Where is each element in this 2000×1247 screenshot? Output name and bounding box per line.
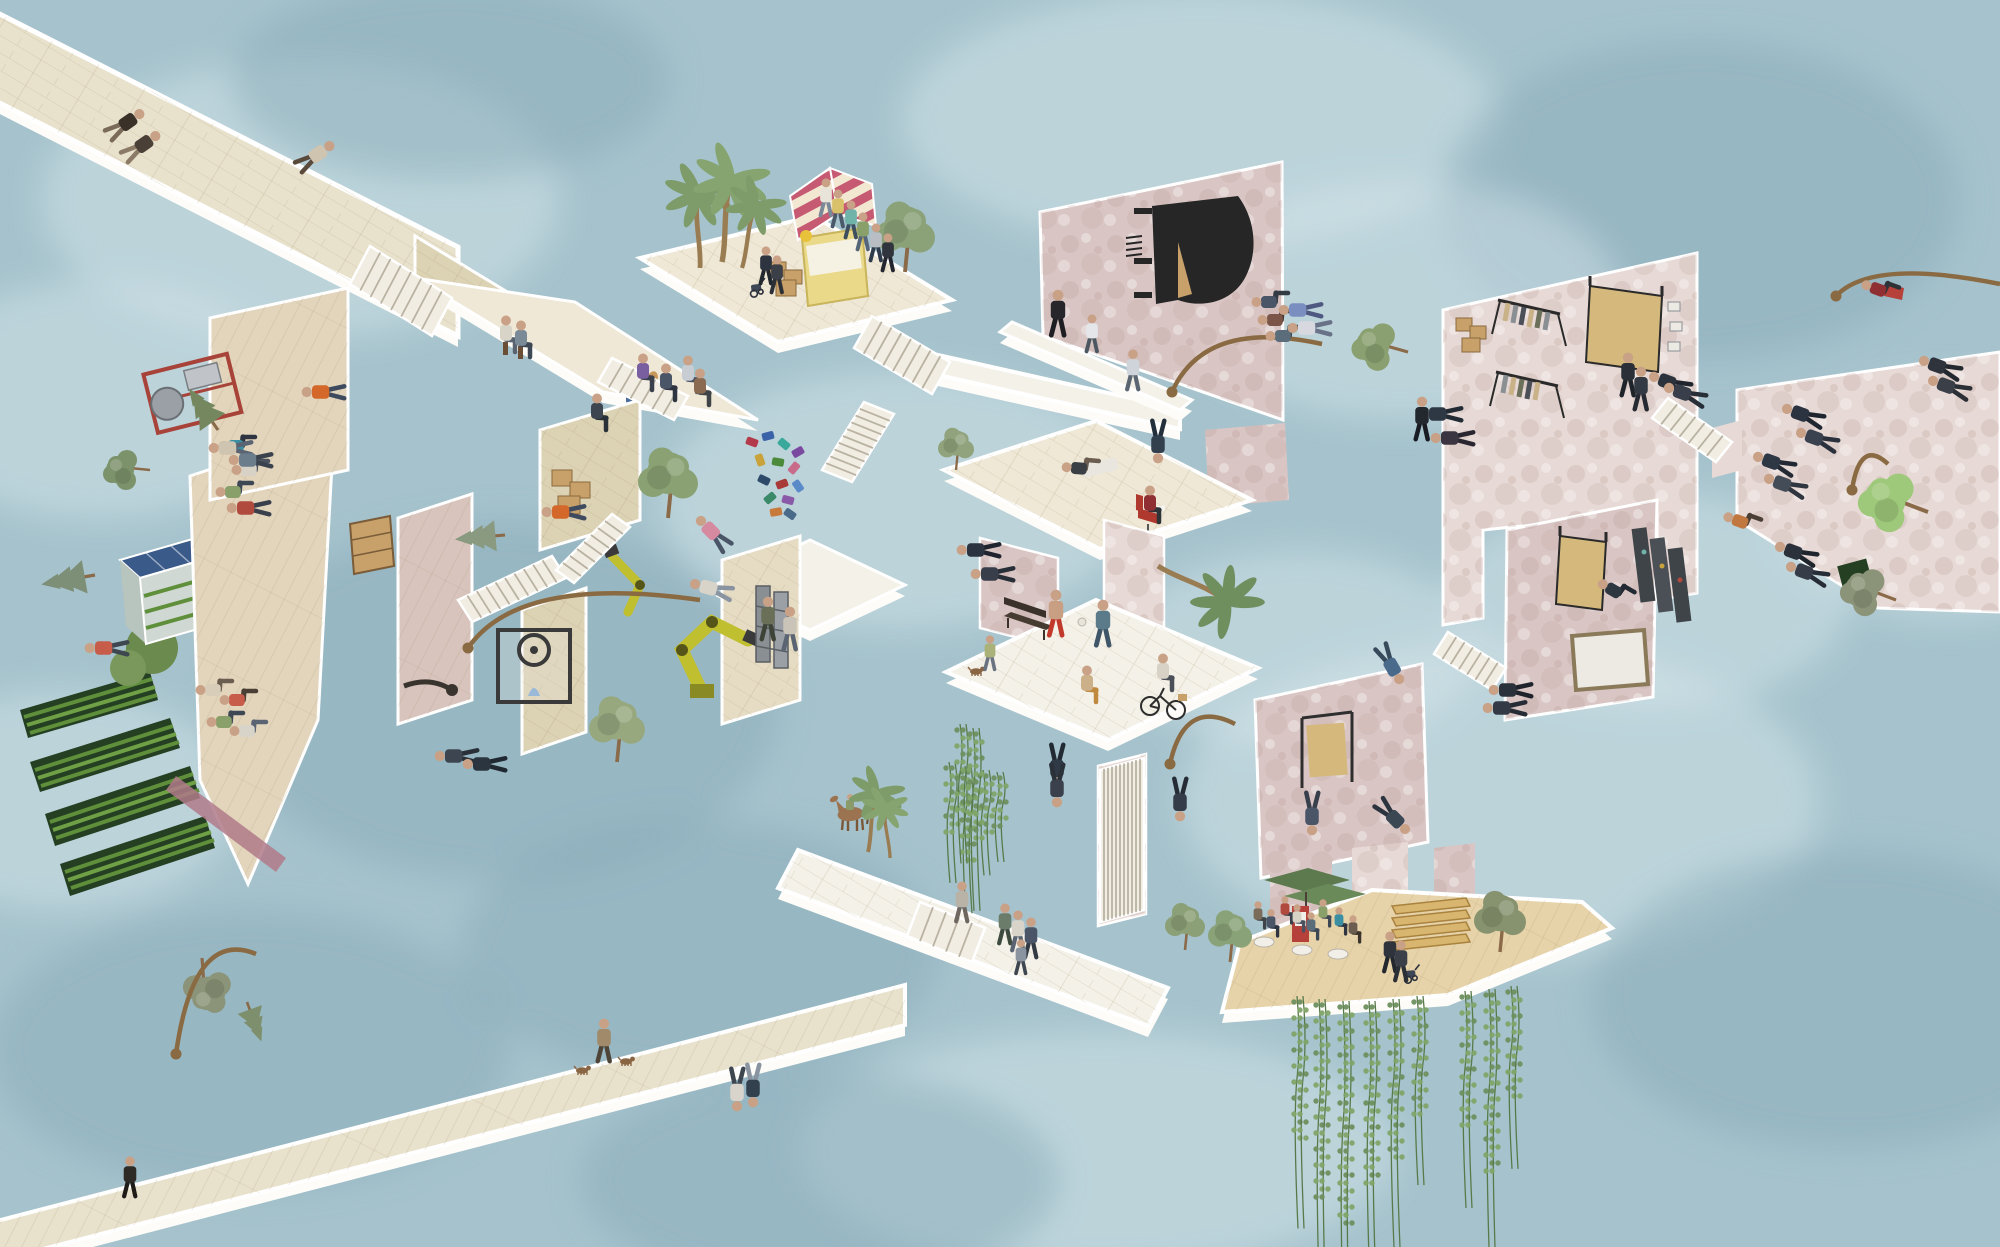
vine-leaf: [1375, 1124, 1380, 1129]
head: [229, 455, 239, 465]
head: [773, 255, 782, 264]
torso: [1267, 916, 1276, 928]
torso: [1441, 431, 1458, 445]
vine-leaf: [943, 829, 948, 834]
ball: [1078, 618, 1086, 626]
head: [638, 354, 648, 364]
vine-leaf: [1303, 1103, 1308, 1108]
torso: [956, 891, 969, 907]
vine-leaf: [1363, 1116, 1368, 1121]
vine-leaf: [1343, 1132, 1348, 1137]
vine-leaf: [1319, 1178, 1324, 1183]
vine-leaf: [1459, 1010, 1464, 1015]
vine-leaf: [1313, 1018, 1318, 1023]
head: [1431, 433, 1441, 443]
vine-leaf: [1465, 1122, 1470, 1127]
vine-leaf: [1511, 1053, 1516, 1058]
vine-leaf: [949, 773, 954, 778]
torso: [1012, 920, 1025, 936]
vine-leaf: [943, 765, 948, 770]
vine-leaf: [1465, 994, 1470, 999]
vine-leaf: [1343, 1004, 1348, 1009]
vine-leaf: [973, 811, 978, 816]
torso: [591, 403, 603, 419]
dog-head: [630, 1057, 635, 1062]
vine-leaf: [1297, 1079, 1302, 1084]
torso: [746, 1080, 760, 1097]
head: [1082, 666, 1092, 676]
vine-leaf: [1313, 1146, 1318, 1151]
vine-leaf: [1411, 1031, 1416, 1036]
torso: [845, 209, 857, 224]
vine-leaf: [1349, 1204, 1354, 1209]
vine-leaf: [1313, 1162, 1318, 1167]
vine-leaf: [1313, 1130, 1318, 1135]
vine-leaf: [1459, 1106, 1464, 1111]
vine-leaf: [1319, 1058, 1324, 1063]
vine-leaf: [1319, 1162, 1324, 1167]
vine-leaf: [1297, 999, 1302, 1004]
torso: [1096, 611, 1110, 629]
vine-leaf: [1465, 1074, 1470, 1079]
vine-leaf: [1471, 1050, 1476, 1055]
vine-leaf: [1465, 1010, 1470, 1015]
vine-leaf: [1489, 1104, 1494, 1109]
vine-leaf: [973, 827, 978, 832]
vine-leaf: [1319, 1098, 1324, 1103]
head: [1636, 367, 1646, 377]
head: [1088, 314, 1097, 323]
head: [463, 759, 473, 769]
torso: [515, 330, 527, 346]
bar-stool: [518, 346, 523, 359]
vine-leaf: [1369, 1028, 1374, 1033]
torso: [1293, 911, 1302, 923]
vine-leaf: [1319, 1010, 1324, 1015]
vine-leaf: [1297, 1047, 1302, 1052]
torso: [1395, 950, 1408, 966]
vine-leaf: [1411, 1015, 1416, 1020]
vine-leaf: [997, 783, 1002, 788]
vine-leaf: [997, 823, 1002, 828]
head: [957, 545, 967, 555]
vine-leaf: [1489, 1144, 1494, 1149]
vine-leaf: [1325, 1186, 1330, 1191]
vine-leaf: [1495, 1096, 1500, 1101]
vine-leaf: [1319, 1034, 1324, 1039]
vine-leaf: [1511, 1029, 1516, 1034]
vine-leaf: [1319, 1074, 1324, 1079]
vine-leaf: [1393, 1010, 1398, 1015]
torso: [124, 1166, 137, 1182]
torso: [882, 242, 894, 257]
vine-leaf: [1483, 1072, 1488, 1077]
vine-leaf: [1369, 1012, 1374, 1017]
vine-leaf: [979, 819, 984, 824]
vine-leaf: [973, 779, 978, 784]
vine-leaf: [1399, 1154, 1404, 1159]
torso: [981, 567, 998, 581]
vine-leaf: [960, 743, 965, 748]
vine-leaf: [1349, 1140, 1354, 1145]
vine-leaf: [1387, 1130, 1392, 1135]
torso: [1298, 321, 1315, 335]
vine-leaf: [1465, 1042, 1470, 1047]
canopy-light: [110, 459, 122, 471]
vine-leaf: [1393, 1098, 1398, 1103]
head: [196, 685, 206, 695]
vine-leaf: [1505, 1085, 1510, 1090]
vine-leaf: [943, 797, 948, 802]
head: [1483, 703, 1493, 713]
torso: [1275, 330, 1291, 342]
vine-leaf: [1417, 1015, 1422, 1020]
vine-leaf: [1471, 1066, 1476, 1071]
head: [763, 597, 773, 607]
torso: [1016, 948, 1027, 962]
vine-leaf: [1489, 1056, 1494, 1061]
vine-leaf: [1393, 1002, 1398, 1007]
vine-leaf: [1291, 1015, 1296, 1020]
vine-leaf: [973, 763, 978, 768]
torso: [1151, 436, 1165, 453]
head: [834, 189, 843, 198]
torso: [239, 453, 256, 467]
vine-leaf: [1349, 1156, 1354, 1161]
vine-leaf: [1337, 1084, 1342, 1089]
torso: [1384, 941, 1397, 957]
vine-leaf: [1471, 1098, 1476, 1103]
vine-leaf: [1313, 1002, 1318, 1007]
vine-leaf: [983, 797, 988, 802]
vine-leaf: [1387, 1066, 1392, 1071]
vine-leaf: [1291, 1063, 1296, 1068]
vine-leaf: [960, 807, 965, 812]
vine-leaf: [1319, 1042, 1324, 1047]
vine-leaf: [1297, 1023, 1302, 1028]
vine-leaf: [1297, 1127, 1302, 1132]
vine-leaf: [1325, 1058, 1330, 1063]
vine-leaf: [1459, 1122, 1464, 1127]
vine-leaf: [1489, 1016, 1494, 1021]
stall-chair: [1670, 322, 1682, 331]
torso: [1307, 919, 1316, 931]
vine-leaf: [1459, 1074, 1464, 1079]
vine-leaf: [1489, 1000, 1494, 1005]
vine-leaf: [1465, 1034, 1470, 1039]
vine-leaf: [1423, 1103, 1428, 1108]
vine-leaf: [1337, 1148, 1342, 1153]
vine-leaf: [954, 743, 959, 748]
vine-leaf: [1459, 1026, 1464, 1031]
torso: [312, 385, 329, 399]
vine-leaf: [1465, 1058, 1470, 1063]
torso: [637, 363, 649, 379]
head: [971, 569, 981, 579]
vine-leaf: [979, 755, 984, 760]
head: [592, 394, 602, 404]
head: [230, 726, 240, 736]
vine-leaf: [1319, 1002, 1324, 1007]
vine-leaf: [1291, 1127, 1296, 1132]
torso: [1144, 495, 1156, 511]
vine-leaf: [1495, 1128, 1500, 1133]
vine-leaf: [1363, 1052, 1368, 1057]
vine-leaf: [1369, 1004, 1374, 1009]
vine-leaf: [1387, 1034, 1392, 1039]
vine-leaf: [1417, 1031, 1422, 1036]
vine-leaf: [1363, 1068, 1368, 1073]
vine-leaf: [1369, 1052, 1374, 1057]
lamp-head: [171, 1049, 182, 1060]
torso: [552, 505, 569, 519]
vine-leaf: [1495, 1048, 1500, 1053]
vine-leaf: [991, 807, 996, 812]
torso: [219, 441, 236, 455]
vine-leaf: [1489, 992, 1494, 997]
vine-leaf: [1375, 1044, 1380, 1049]
torso: [1081, 675, 1093, 691]
vine-leaf: [1297, 1055, 1302, 1060]
vine-leaf: [949, 829, 954, 834]
vine-leaf: [1459, 994, 1464, 999]
torso: [1050, 780, 1064, 797]
vine-leaf: [949, 765, 954, 770]
vine-leaf: [1393, 1066, 1398, 1071]
vine-leaf: [1319, 1090, 1324, 1095]
vine-leaf: [1291, 1047, 1296, 1052]
vine-leaf: [1343, 1100, 1348, 1105]
head: [1254, 901, 1261, 908]
vine-leaf: [1483, 1168, 1488, 1173]
vine-leaf: [1325, 1010, 1330, 1015]
vine-leaf: [1399, 1106, 1404, 1111]
vine-leaf: [1489, 1008, 1494, 1013]
vine-leaf: [1417, 1055, 1422, 1060]
vine-leaf: [1313, 1050, 1318, 1055]
vine-leaf: [1343, 1060, 1348, 1065]
vine-leaf: [967, 795, 972, 800]
vine-leaf: [1505, 1021, 1510, 1026]
torso: [216, 716, 232, 728]
vine-leaf: [1517, 1077, 1522, 1082]
vine-leaf: [1393, 1130, 1398, 1135]
vine-leaf: [1423, 1039, 1428, 1044]
vine-leaf: [965, 817, 970, 822]
vine-leaf: [1423, 1007, 1428, 1012]
vine-leaf: [1375, 1156, 1380, 1161]
vine-leaf: [1417, 1063, 1422, 1068]
vine-leaf: [1369, 1036, 1374, 1041]
vine-leaf: [954, 759, 959, 764]
torso: [1499, 683, 1516, 697]
vine-leaf: [1325, 1106, 1330, 1111]
vine-leaf: [1417, 1079, 1422, 1084]
vine-leaf: [997, 791, 1002, 796]
vine-leaf: [983, 781, 988, 786]
vine-leaf: [960, 775, 965, 780]
vine-leaf: [979, 787, 984, 792]
vine-leaf: [1343, 1020, 1348, 1025]
torso: [760, 255, 772, 270]
torso: [1335, 914, 1344, 926]
vine-leaf: [1417, 1111, 1422, 1116]
vine-leaf: [1459, 1042, 1464, 1047]
head: [1153, 453, 1163, 463]
torso: [870, 232, 882, 247]
vine-leaf: [989, 813, 994, 818]
vine-leaf: [1303, 1087, 1308, 1092]
vine-leaf: [1349, 1092, 1354, 1097]
vine-leaf: [1337, 1052, 1342, 1057]
vine-leaf: [1337, 1132, 1342, 1137]
torso: [205, 684, 221, 696]
vine-leaf: [1303, 1119, 1308, 1124]
head: [1026, 918, 1036, 928]
vine-leaf: [1375, 1028, 1380, 1033]
vine-leaf: [1003, 815, 1008, 820]
vine-leaf: [973, 771, 978, 776]
head: [1307, 912, 1314, 919]
torso: [783, 617, 797, 634]
head: [1258, 315, 1268, 325]
vine-leaf: [967, 779, 972, 784]
axonometric-scene: [0, 0, 2000, 1247]
torso: [1157, 663, 1169, 679]
vine-leaf: [1343, 1180, 1348, 1185]
vine-leaf: [1489, 1024, 1494, 1029]
vine-leaf: [1303, 1055, 1308, 1060]
vine-leaf: [1291, 999, 1296, 1004]
vine-leaf: [1375, 1092, 1380, 1097]
vine-leaf: [1411, 999, 1416, 1004]
vine-leaf: [1511, 1085, 1516, 1090]
vine-leaf: [979, 835, 984, 840]
wooden-crate: [350, 516, 394, 574]
vine-leaf: [1417, 1047, 1422, 1052]
vine-leaf: [1411, 1111, 1416, 1116]
torso: [473, 757, 490, 771]
vine-leaf: [1471, 1082, 1476, 1087]
vine-leaf: [1393, 1114, 1398, 1119]
vine-leaf: [1369, 1084, 1374, 1089]
vine-leaf: [1369, 1076, 1374, 1081]
vine-leaf: [1291, 1079, 1296, 1084]
vine-leaf: [979, 803, 984, 808]
head: [516, 321, 526, 331]
vine-leaf: [954, 775, 959, 780]
torso: [1127, 359, 1140, 375]
vine-leaf: [1343, 1036, 1348, 1041]
vine-leaf: [1303, 1023, 1308, 1028]
vine-leaf: [1369, 1068, 1374, 1073]
vine-leaf: [1483, 992, 1488, 997]
vine-leaf: [949, 781, 954, 786]
head: [1335, 907, 1342, 914]
vine-leaf: [1343, 1068, 1348, 1073]
vine-leaf: [1511, 997, 1516, 1002]
vine-leaf: [1411, 1079, 1416, 1084]
vine-leaf: [960, 759, 965, 764]
vine-leaf: [1337, 1180, 1342, 1185]
vine-leaf: [1297, 1111, 1302, 1116]
vine-leaf: [1319, 1146, 1324, 1151]
vine-leaf: [1517, 1029, 1522, 1034]
torso: [1289, 303, 1306, 317]
stair-run: [1100, 758, 1144, 922]
vine-leaf: [1387, 1146, 1392, 1151]
vine-leaf: [1313, 1194, 1318, 1199]
vine-leaf: [1489, 1088, 1494, 1093]
vine-leaf: [1517, 1061, 1522, 1066]
vine-leaf: [1319, 1106, 1324, 1111]
vine-leaf: [1375, 1172, 1380, 1177]
head: [501, 316, 511, 326]
vine-leaf: [1319, 1050, 1324, 1055]
head: [1279, 305, 1289, 315]
vine-leaf: [1363, 1148, 1368, 1153]
head: [435, 751, 445, 761]
vine-leaf: [1325, 1170, 1330, 1175]
vine-leaf: [1483, 1088, 1488, 1093]
vine-leaf: [1459, 1058, 1464, 1063]
vine-leaf: [1375, 1140, 1380, 1145]
torso: [1621, 363, 1635, 380]
vine-leaf: [954, 791, 959, 796]
vine-leaf: [1349, 1044, 1354, 1049]
vine-leaf: [1363, 1132, 1368, 1137]
vine-leaf: [1343, 1012, 1348, 1017]
vine-leaf: [1495, 1016, 1500, 1021]
head: [125, 1157, 135, 1167]
vine-leaf: [1399, 1042, 1404, 1047]
vine-leaf: [979, 739, 984, 744]
vine-leaf: [1369, 1132, 1374, 1137]
vine-leaf: [954, 727, 959, 732]
vine-leaf: [989, 829, 994, 834]
vine-leaf: [973, 755, 978, 760]
torso: [1267, 314, 1283, 326]
vine-leaf: [1313, 1114, 1318, 1119]
vine-leaf: [1319, 1130, 1324, 1135]
vine-leaf: [1337, 1004, 1342, 1009]
vine-leaf: [1363, 1004, 1368, 1009]
torso: [832, 198, 844, 213]
torso: [1086, 323, 1098, 338]
vine-leaf: [1343, 1164, 1348, 1169]
head: [847, 200, 856, 209]
vine-leaf: [1511, 989, 1516, 994]
vine-leaf: [1003, 799, 1008, 804]
vine-leaf: [1505, 989, 1510, 994]
vine-leaf: [1459, 1090, 1464, 1095]
torso: [1071, 462, 1088, 475]
head: [1017, 939, 1025, 947]
vine-leaf: [1297, 1063, 1302, 1068]
lamp-head: [463, 643, 474, 654]
vine-leaf: [1489, 1064, 1494, 1069]
lamp-head: [1165, 759, 1176, 770]
vine-leaf: [1517, 1013, 1522, 1018]
vine-leaf: [1483, 1056, 1488, 1061]
vine-leaf: [1343, 1076, 1348, 1081]
head: [661, 364, 671, 374]
vine-leaf: [959, 833, 964, 838]
vine-leaf: [1399, 1074, 1404, 1079]
head: [986, 635, 994, 643]
vine-leaf: [960, 751, 965, 756]
vine-leaf: [1387, 1082, 1392, 1087]
